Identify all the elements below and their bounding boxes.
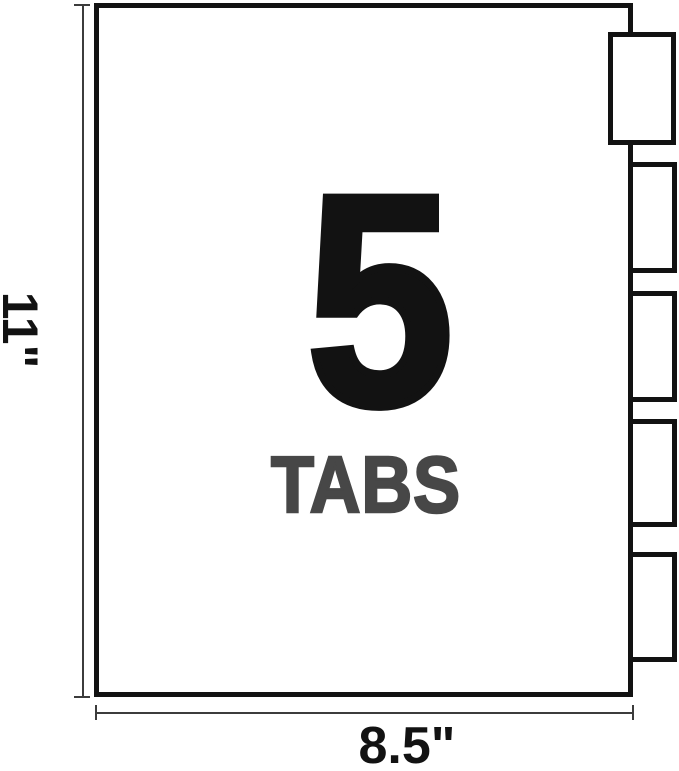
tab-count-numeral: 5 xyxy=(248,150,512,450)
height-dimension-line xyxy=(82,4,84,698)
width-dimension-label: 8.5" xyxy=(307,720,507,771)
height-dimension-label: 11" xyxy=(0,275,45,385)
height-dimension-tick-bottom xyxy=(74,696,90,698)
index-tab-4 xyxy=(628,419,677,527)
index-tab-2 xyxy=(628,162,677,273)
index-tab-3 xyxy=(628,291,677,402)
product-diagram: 11" 5 TABS 8.5" xyxy=(0,0,679,771)
index-tab-5 xyxy=(628,552,677,662)
width-dimension-tick-right xyxy=(632,705,634,720)
tabs-word-label: TABS xyxy=(234,445,498,525)
width-dimension-line xyxy=(95,712,634,714)
index-tab-1 xyxy=(608,32,676,145)
